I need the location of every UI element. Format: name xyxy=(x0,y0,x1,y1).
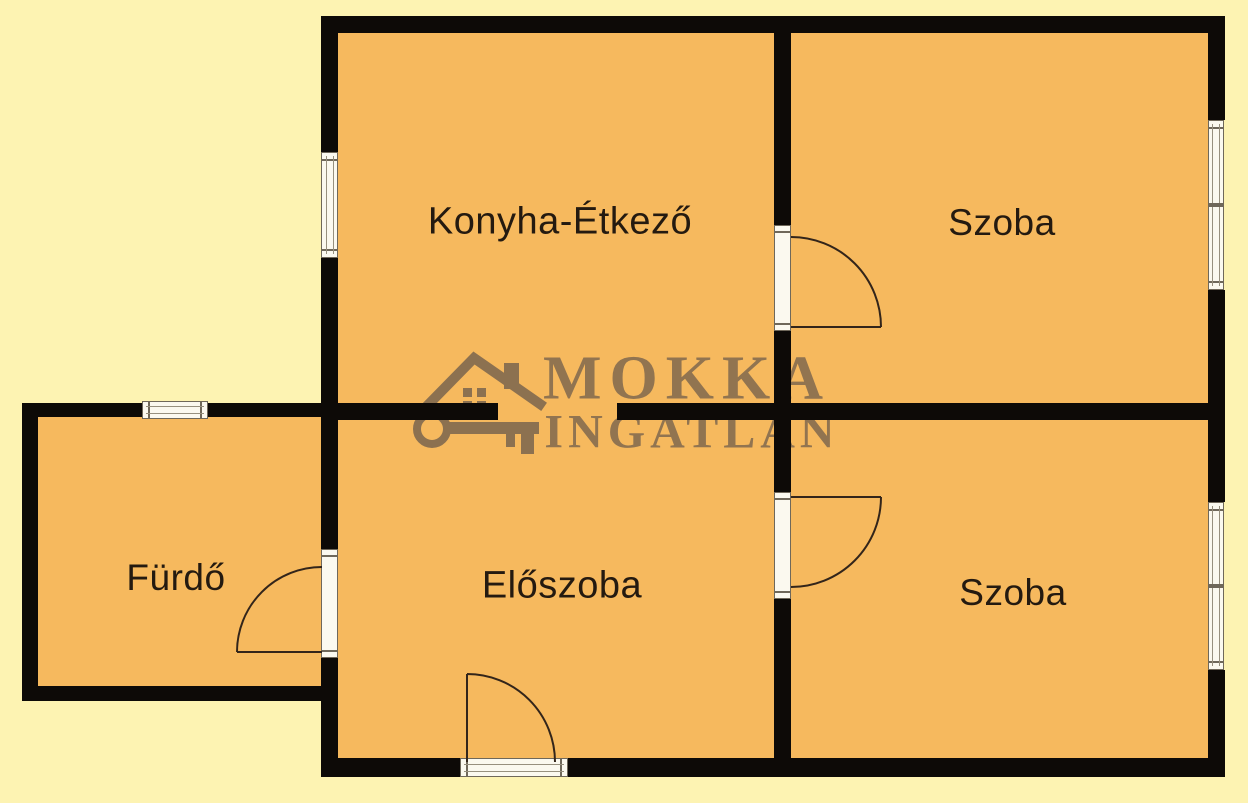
window-room-top-right xyxy=(1208,120,1224,290)
floorplan-canvas: MOKKA INGATLAN xyxy=(0,0,1248,803)
floor-bathroom-annex xyxy=(38,417,321,686)
wall-annex-top-right xyxy=(208,403,321,417)
wall-left-lower xyxy=(321,658,338,777)
room-label-szoba-felso: Szoba xyxy=(948,202,1055,244)
room-label-konyha-etkezo: Konyha-Étkező xyxy=(428,201,692,244)
door-opening-room-top xyxy=(774,225,791,331)
wall-right-middle xyxy=(1208,290,1225,502)
wall-horizontal-left xyxy=(338,403,498,420)
wall-left-middle xyxy=(321,258,338,549)
door-opening-entrance xyxy=(460,758,568,777)
wall-right-lower xyxy=(1208,670,1225,777)
wall-left-upper xyxy=(321,16,338,152)
wall-bottom-right xyxy=(568,758,1225,777)
wall-annex-bottom xyxy=(22,686,321,701)
door-opening-bathroom xyxy=(321,549,338,658)
room-label-furdo: Fürdő xyxy=(126,557,225,599)
window-room-bottom-right xyxy=(1208,502,1224,670)
wall-annex-left xyxy=(22,403,38,701)
wall-vertical-lower xyxy=(774,599,791,758)
wall-top xyxy=(321,16,1225,33)
room-label-eloszoba: Előszoba xyxy=(482,565,642,608)
wall-annex-top-left xyxy=(22,403,142,417)
door-opening-room-bottom xyxy=(774,492,791,599)
wall-bottom-left xyxy=(321,758,460,777)
window-bathroom-top xyxy=(142,401,208,419)
window-kitchen-left xyxy=(321,152,338,258)
room-label-szoba-also: Szoba xyxy=(959,572,1066,614)
wall-horizontal-right xyxy=(617,403,1208,420)
wall-right-upper xyxy=(1208,16,1225,120)
wall-vertical-upper xyxy=(774,33,791,225)
